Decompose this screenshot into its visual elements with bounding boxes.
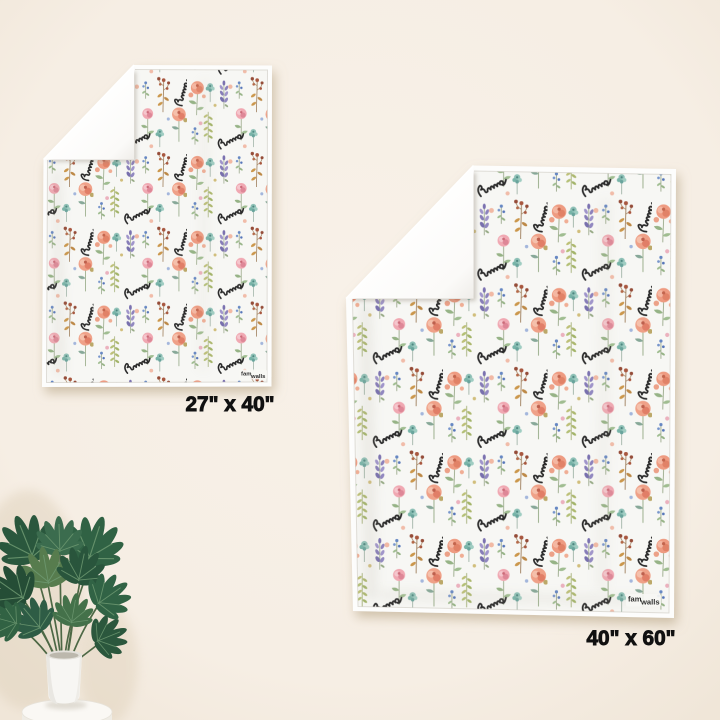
svg-text:27" x 40": 27" x 40" [185, 393, 274, 416]
svg-text:fam: fam [628, 595, 642, 604]
svg-text:walls: walls [640, 598, 660, 607]
svg-text:40" x 60": 40" x 60" [586, 627, 675, 650]
svg-text:walls: walls [250, 374, 266, 380]
svg-text:fam: fam [241, 372, 251, 378]
